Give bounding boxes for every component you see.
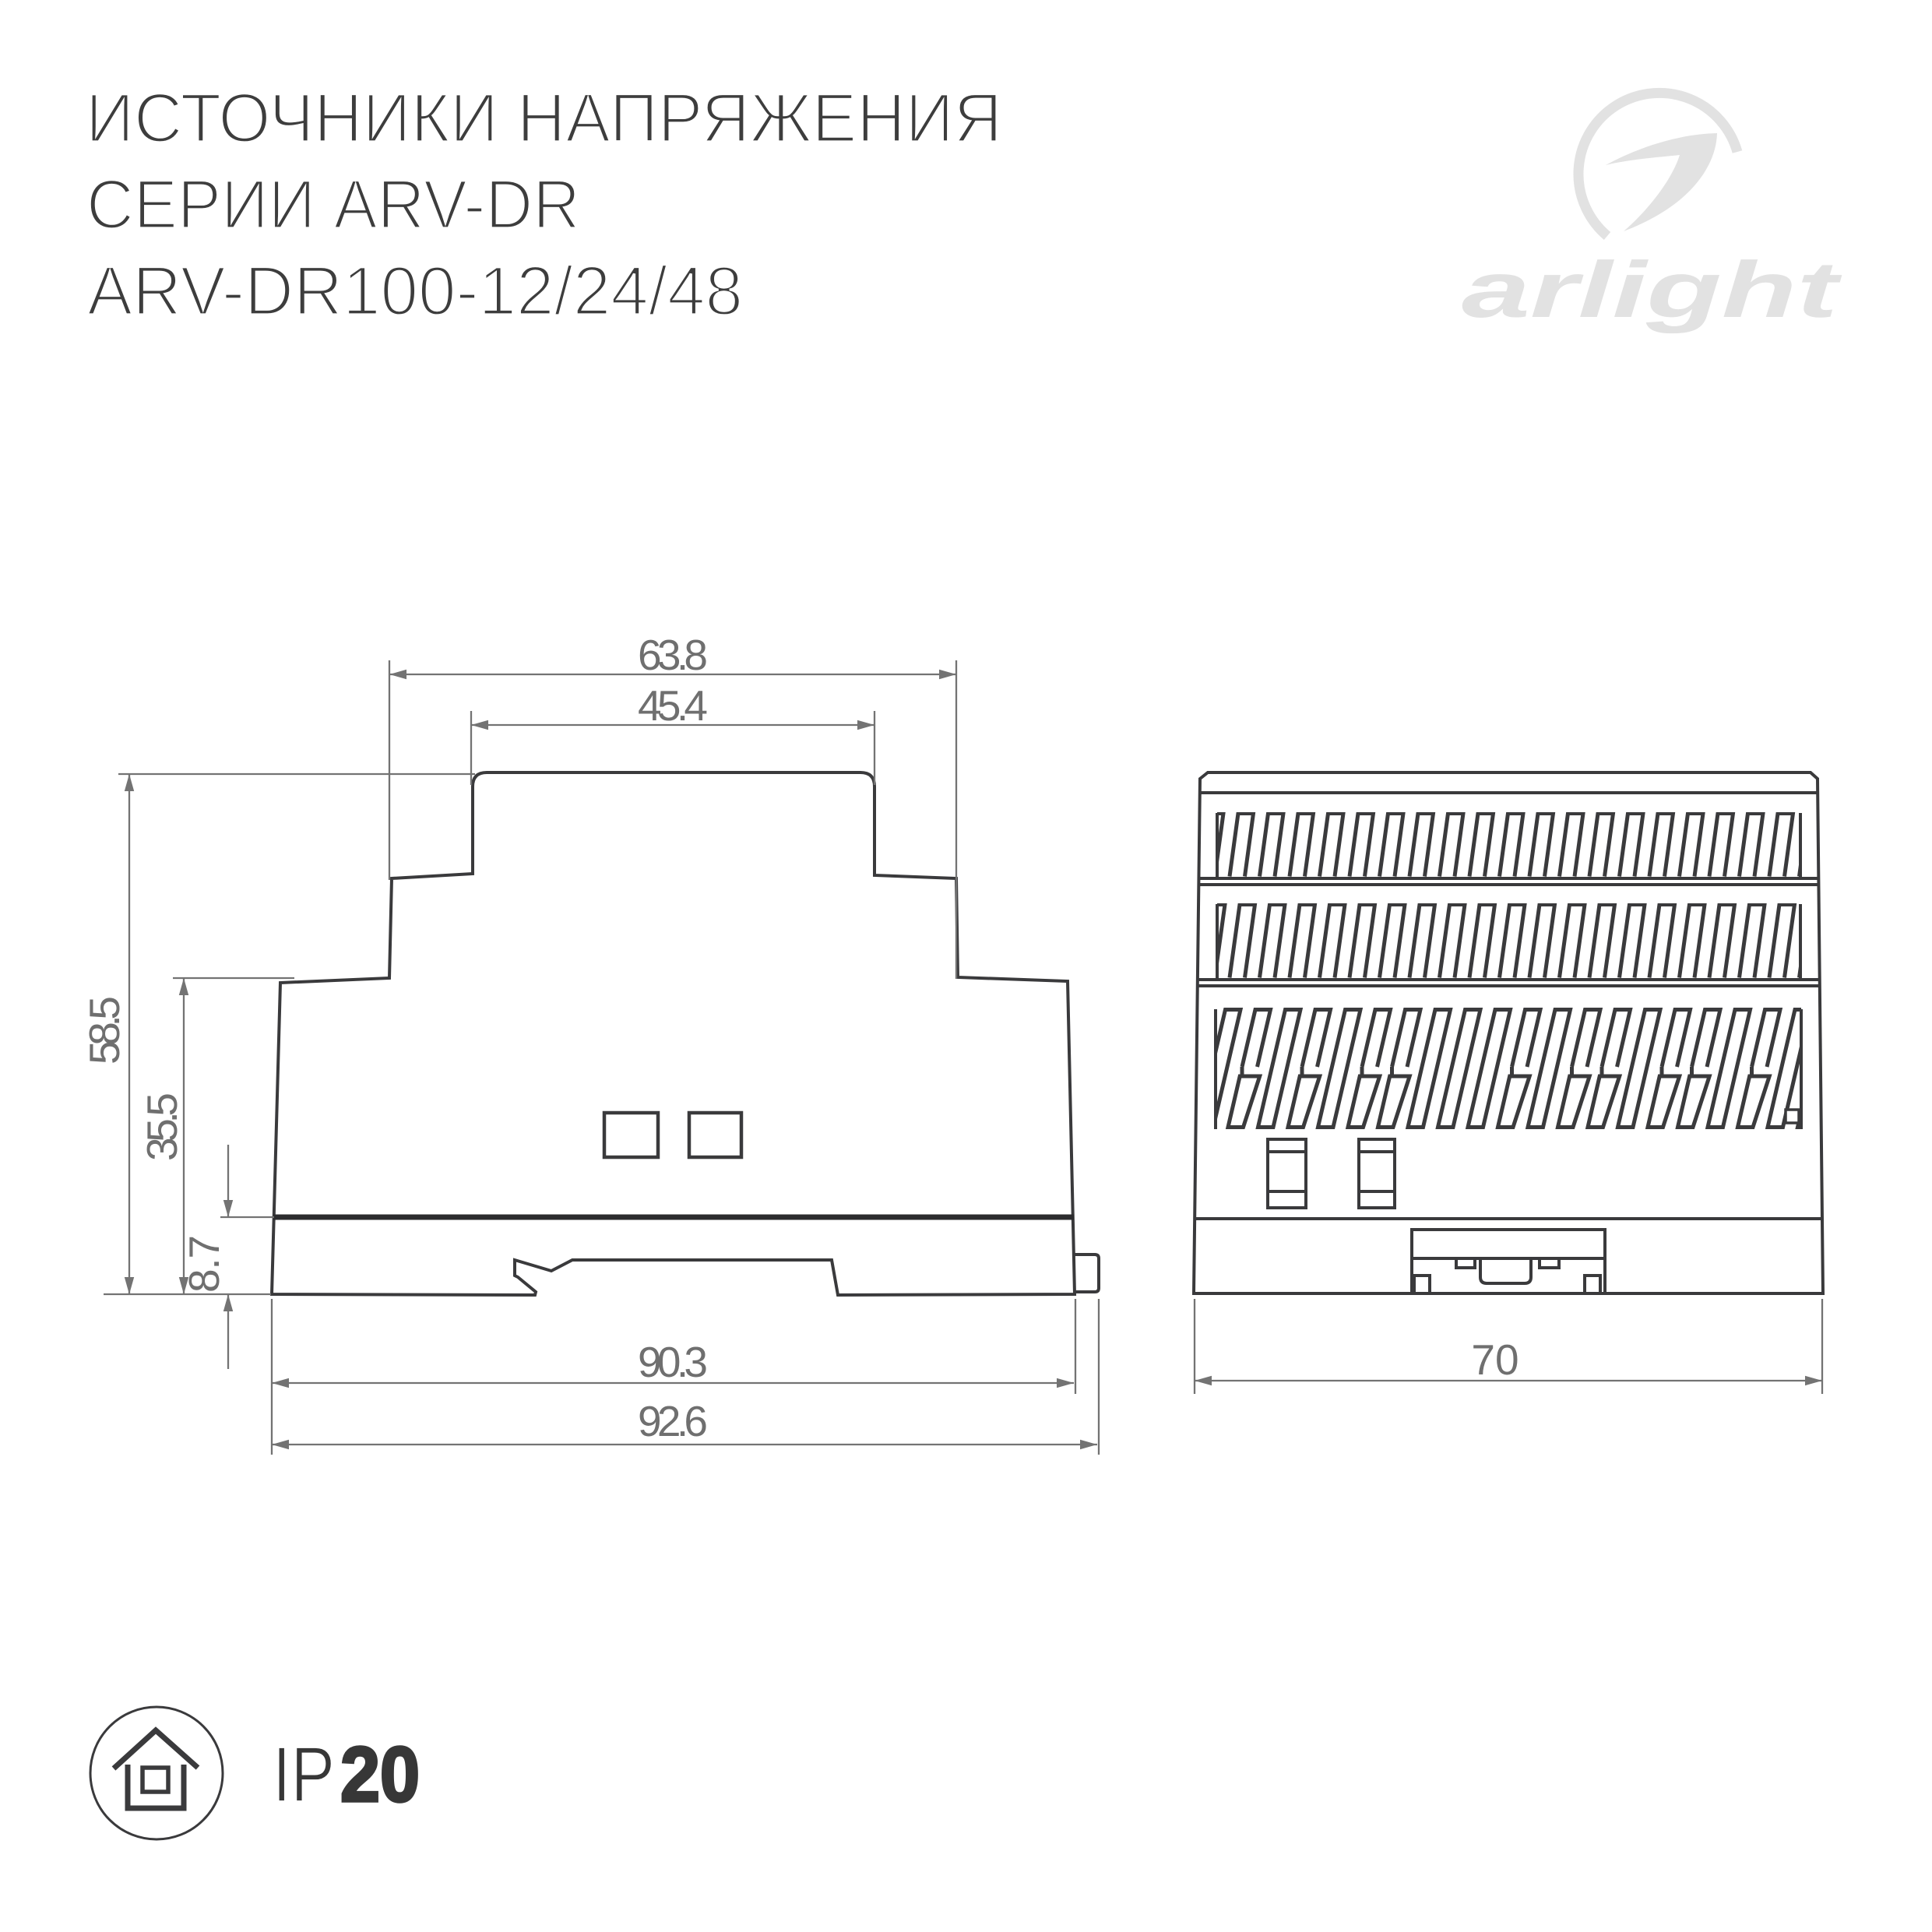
svg-text:20: 20 — [340, 1731, 420, 1818]
svg-text:arlight: arlight — [1462, 245, 1842, 334]
svg-text:92.6: 92.6 — [638, 1397, 708, 1445]
svg-text:63.8: 63.8 — [638, 631, 708, 679]
svg-text:8.7: 8.7 — [180, 1235, 228, 1293]
svg-text:58.5: 58.5 — [80, 996, 128, 1065]
svg-text:СЕРИИ ARV-DR: СЕРИИ ARV-DR — [86, 165, 580, 243]
svg-text:ИСТОЧНИКИ НАПРЯЖЕНИЯ: ИСТОЧНИКИ НАПРЯЖЕНИЯ — [86, 79, 1002, 157]
svg-text:70: 70 — [1471, 1336, 1519, 1384]
svg-text:35.5: 35.5 — [138, 1093, 186, 1161]
svg-text:ARV-DR100-12/24/48: ARV-DR100-12/24/48 — [87, 252, 743, 329]
svg-text:IP: IP — [273, 1731, 335, 1818]
svg-text:90.3: 90.3 — [638, 1338, 708, 1386]
svg-text:45.4: 45.4 — [638, 681, 708, 730]
